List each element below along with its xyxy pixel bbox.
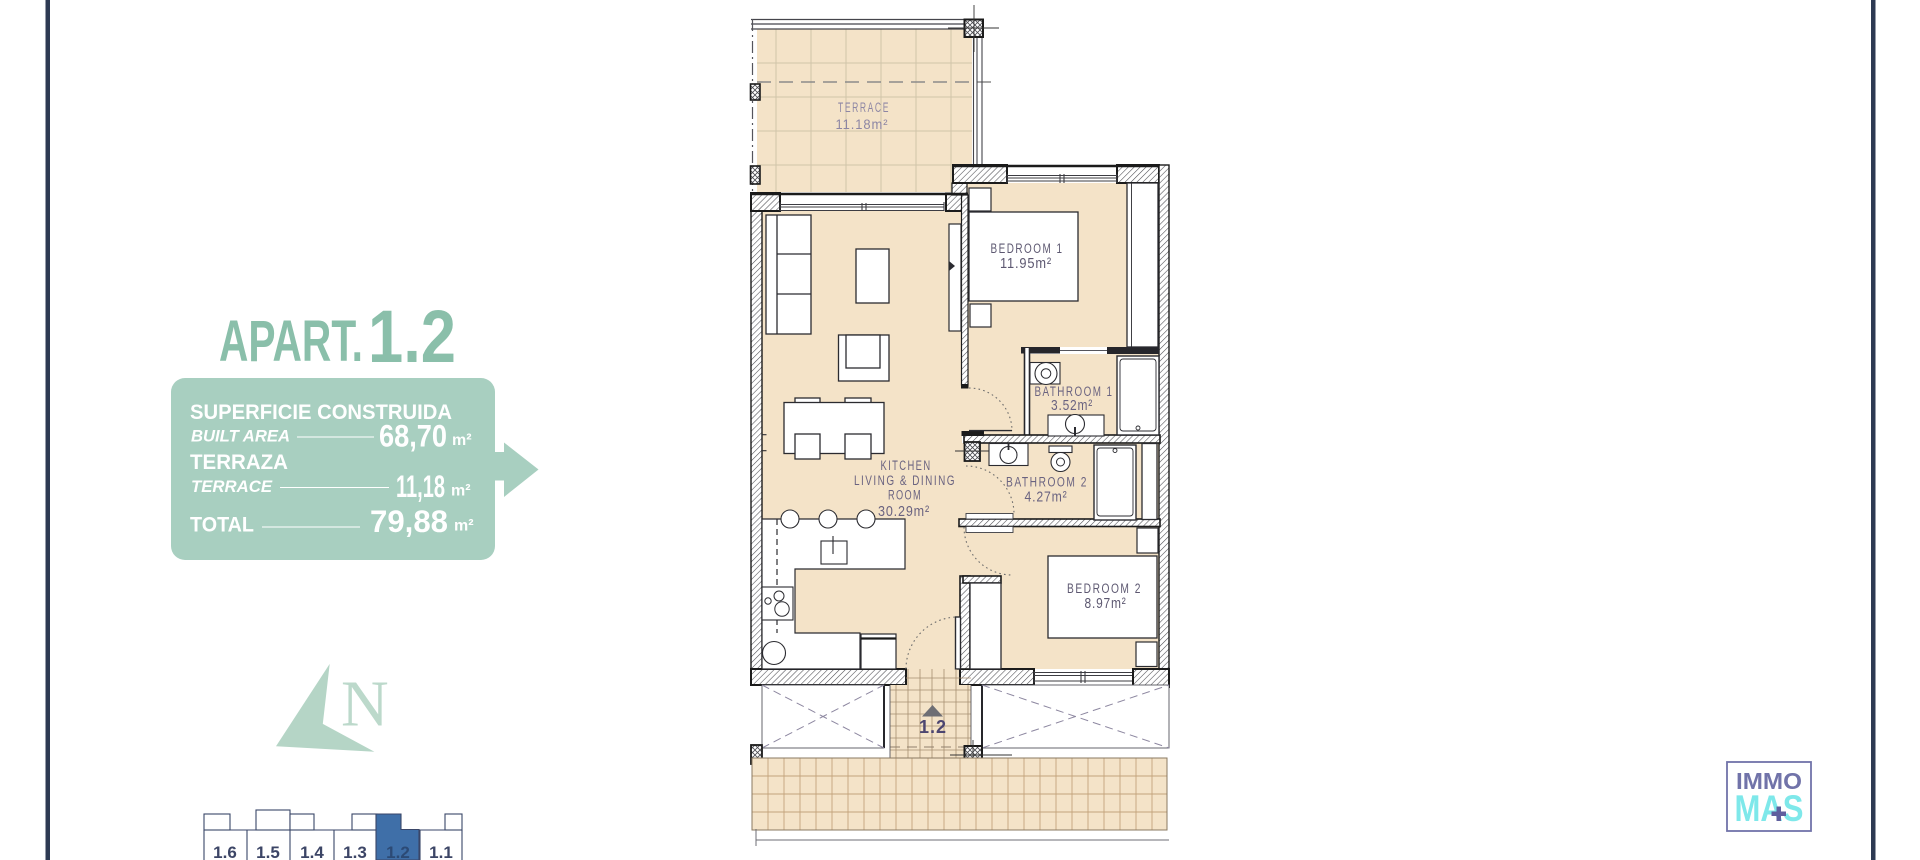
svg-text:8.97m²: 8.97m² bbox=[1085, 595, 1127, 612]
svg-text:m²: m² bbox=[454, 518, 474, 535]
svg-text:BEDROOM 2: BEDROOM 2 bbox=[1067, 581, 1142, 596]
svg-text:1.3: 1.3 bbox=[343, 843, 367, 860]
svg-text:3.52m²: 3.52m² bbox=[1051, 397, 1093, 414]
svg-text:TERRAZA: TERRAZA bbox=[190, 450, 288, 474]
svg-text:1.2: 1.2 bbox=[386, 843, 410, 860]
svg-text:30.29m²: 30.29m² bbox=[878, 503, 930, 520]
svg-text:TOTAL: TOTAL bbox=[190, 513, 254, 537]
svg-text:APART.: APART. bbox=[219, 309, 363, 374]
svg-text:BATHROOM 2: BATHROOM 2 bbox=[1006, 475, 1088, 490]
svg-text:11.95m²: 11.95m² bbox=[1000, 255, 1052, 272]
svg-text:TERRACE: TERRACE bbox=[838, 100, 890, 115]
svg-text:KITCHEN: KITCHEN bbox=[881, 458, 932, 473]
svg-text:BUILT AREA: BUILT AREA bbox=[191, 427, 290, 446]
svg-text:1.2: 1.2 bbox=[919, 717, 947, 737]
svg-text:1.5: 1.5 bbox=[256, 843, 280, 860]
svg-text:m²: m² bbox=[451, 483, 471, 500]
svg-text:ROOM: ROOM bbox=[888, 488, 922, 503]
svg-text:1.6: 1.6 bbox=[213, 843, 237, 860]
svg-text:MAS: MAS bbox=[1735, 788, 1804, 829]
svg-text:1.4: 1.4 bbox=[300, 843, 324, 860]
svg-text:1.2: 1.2 bbox=[368, 295, 456, 378]
svg-text:11.18m²: 11.18m² bbox=[836, 116, 889, 132]
svg-text:4.27m²: 4.27m² bbox=[1025, 489, 1068, 506]
svg-text:N: N bbox=[341, 668, 389, 741]
svg-text:1.1: 1.1 bbox=[429, 843, 453, 860]
svg-text:m²: m² bbox=[452, 432, 472, 449]
svg-text:TERRACE: TERRACE bbox=[191, 477, 273, 496]
svg-text:LIVING & DINING: LIVING & DINING bbox=[854, 473, 956, 488]
svg-text:79,88: 79,88 bbox=[370, 503, 448, 539]
svg-text:11,18: 11,18 bbox=[396, 468, 445, 504]
svg-text:BEDROOM 1: BEDROOM 1 bbox=[991, 241, 1064, 256]
svg-text:68,70: 68,70 bbox=[379, 418, 447, 454]
